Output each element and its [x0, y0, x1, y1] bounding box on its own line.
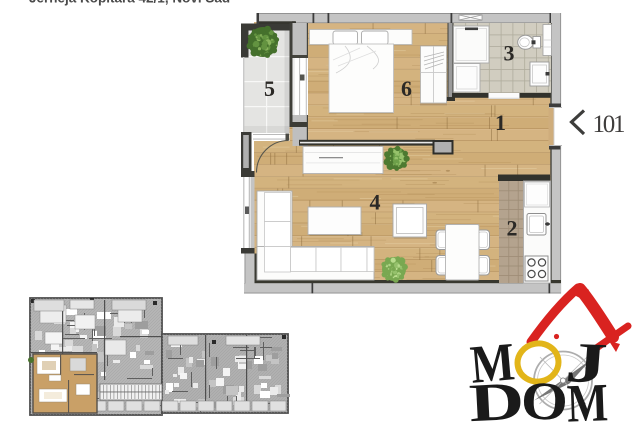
svg-text:6: 6: [401, 76, 412, 101]
svg-text:Jerneja Kopitara 42/1, Novi Sa: Jerneja Kopitara 42/1, Novi Sad: [29, 0, 230, 6]
svg-text:5: 5: [264, 76, 275, 101]
svg-text:4: 4: [370, 190, 381, 215]
svg-text:3: 3: [504, 41, 515, 66]
svg-text:101: 101: [593, 111, 626, 138]
svg-text:M: M: [566, 372, 609, 433]
svg-text:D: D: [468, 370, 526, 433]
svg-text:2: 2: [507, 216, 518, 241]
svg-text:1: 1: [495, 110, 506, 135]
svg-text:O: O: [520, 370, 569, 432]
